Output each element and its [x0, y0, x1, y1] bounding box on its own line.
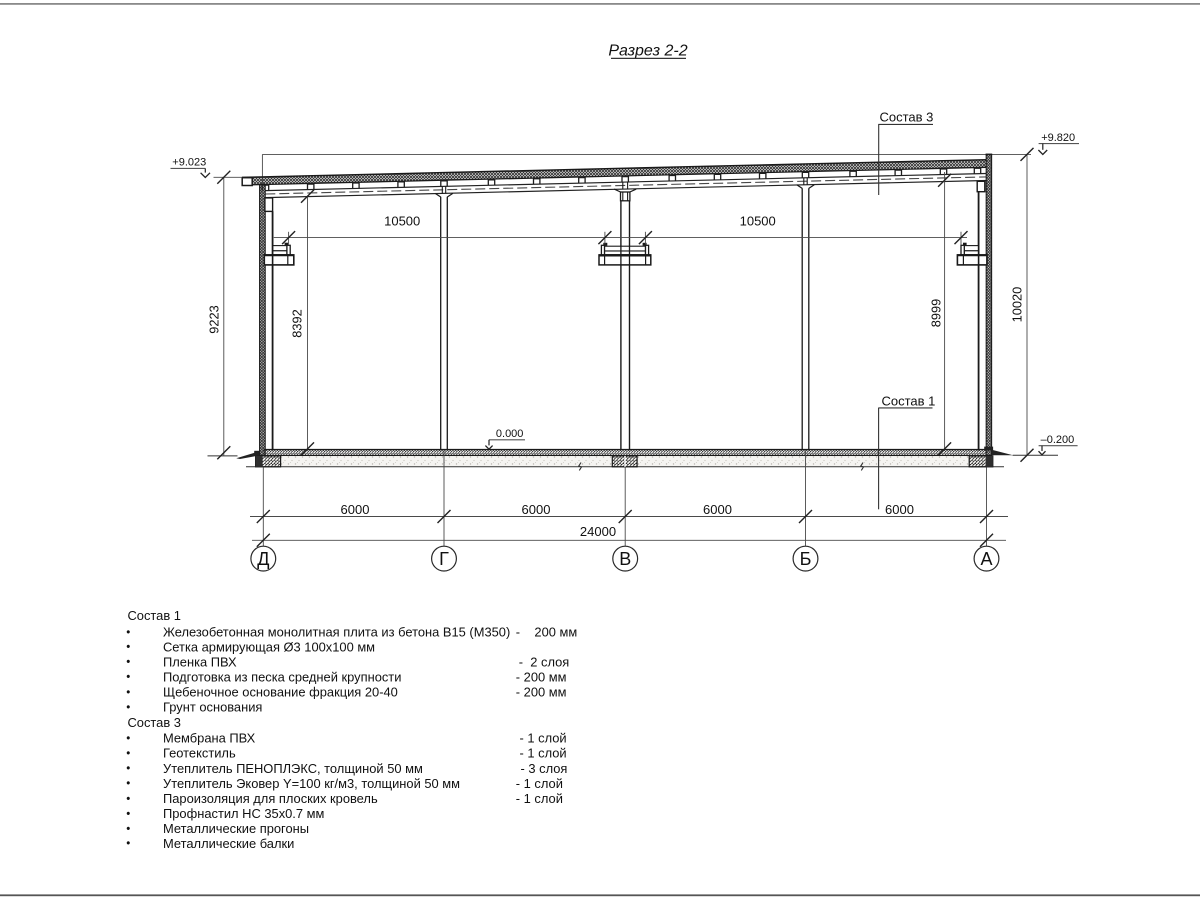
svg-text:Мембрана ПВХ: Мембрана ПВХ — [163, 731, 256, 746]
svg-text:Сетка армирующая Ø3 100х100 мм: Сетка армирующая Ø3 100х100 мм — [163, 639, 375, 654]
svg-text:+9.820: +9.820 — [1041, 132, 1075, 144]
svg-text:6000: 6000 — [885, 502, 914, 517]
svg-text:Г: Г — [439, 549, 449, 569]
svg-text:+9.023: +9.023 — [172, 157, 206, 169]
svg-text:•: • — [126, 809, 130, 821]
svg-text:Утеплитель Эковер Y=100 кг/м3,: Утеплитель Эковер Y=100 кг/м3, толщиной … — [163, 776, 460, 791]
svg-text:- 200 мм: - 200 мм — [516, 669, 567, 684]
svg-text:- 1 слой: - 1 слой — [516, 776, 563, 791]
svg-text:10500: 10500 — [740, 214, 776, 229]
svg-text:10500: 10500 — [384, 214, 420, 229]
svg-text:9223: 9223 — [207, 305, 222, 333]
svg-text:Состав 3: Состав 3 — [128, 715, 181, 730]
svg-text:•: • — [126, 672, 130, 684]
svg-text:•: • — [126, 657, 130, 669]
svg-text:- 2 слоя: - 2 слоя — [519, 654, 569, 669]
svg-text:Металлические балки: Металлические балки — [163, 836, 294, 851]
svg-text:Грунт основания: Грунт основания — [163, 699, 262, 714]
svg-text:•: • — [126, 642, 130, 654]
svg-text:Щебеночное основание фракция 2: Щебеночное основание фракция 20-40 — [163, 685, 398, 700]
svg-text:Состав 1: Состав 1 — [882, 393, 936, 408]
svg-text:•: • — [126, 627, 130, 639]
svg-text:- 1 слой: - 1 слой — [520, 731, 567, 746]
svg-text:•: • — [126, 687, 130, 699]
svg-text:•: • — [126, 838, 130, 850]
svg-text:Пленка ПВХ: Пленка ПВХ — [163, 654, 237, 669]
svg-text:•: • — [126, 824, 130, 836]
svg-text:Профнастил НС 35х0.7 мм: Профнастил НС 35х0.7 мм — [163, 806, 324, 821]
svg-text:24000: 24000 — [580, 524, 616, 539]
svg-text:Состав 3: Состав 3 — [880, 109, 934, 124]
svg-text:Железобетонная монолитная плит: Железобетонная монолитная плита из бетон… — [163, 625, 510, 640]
svg-text:•: • — [126, 778, 130, 790]
svg-text:6000: 6000 — [703, 502, 732, 517]
svg-text:- 1 слой: - 1 слой — [516, 791, 563, 806]
svg-text:Пароизоляция для плоских крове: Пароизоляция для плоских кровель — [163, 791, 378, 806]
svg-text:Металлические прогоны: Металлические прогоны — [163, 821, 309, 836]
svg-text:Д: Д — [257, 549, 269, 569]
svg-text:Разрез 2-2: Разрез 2-2 — [608, 43, 687, 60]
svg-text:- 200 мм: - 200 мм — [516, 625, 577, 640]
svg-text:8392: 8392 — [289, 309, 304, 337]
svg-text:0.000: 0.000 — [496, 428, 524, 440]
svg-text:- 1 слой: - 1 слой — [520, 746, 567, 761]
svg-text:•: • — [126, 733, 130, 745]
svg-text:Геотекстиль: Геотекстиль — [163, 746, 236, 761]
svg-text:А: А — [980, 549, 992, 569]
svg-text:6000: 6000 — [341, 502, 370, 517]
svg-text:10020: 10020 — [1010, 287, 1025, 323]
svg-text:- 200 мм: - 200 мм — [516, 685, 567, 700]
svg-text:8999: 8999 — [929, 299, 944, 327]
svg-text:•: • — [126, 748, 130, 760]
svg-text:Состав 1: Состав 1 — [128, 608, 181, 623]
svg-text:Подготовка из песка средней кр: Подготовка из песка средней крупности — [163, 669, 401, 684]
svg-text:В: В — [619, 549, 631, 569]
svg-text:- 3 слоя: - 3 слоя — [521, 761, 568, 776]
svg-text:6000: 6000 — [522, 502, 551, 517]
svg-text:•: • — [126, 763, 130, 775]
svg-text:–0.200: –0.200 — [1041, 434, 1075, 446]
svg-text:•: • — [126, 702, 130, 714]
svg-text:Утеплитель ПЕНОПЛЭКС, толщиной: Утеплитель ПЕНОПЛЭКС, толщиной 50 мм — [163, 761, 423, 776]
svg-text:Б: Б — [800, 549, 812, 569]
svg-text:•: • — [126, 794, 130, 806]
